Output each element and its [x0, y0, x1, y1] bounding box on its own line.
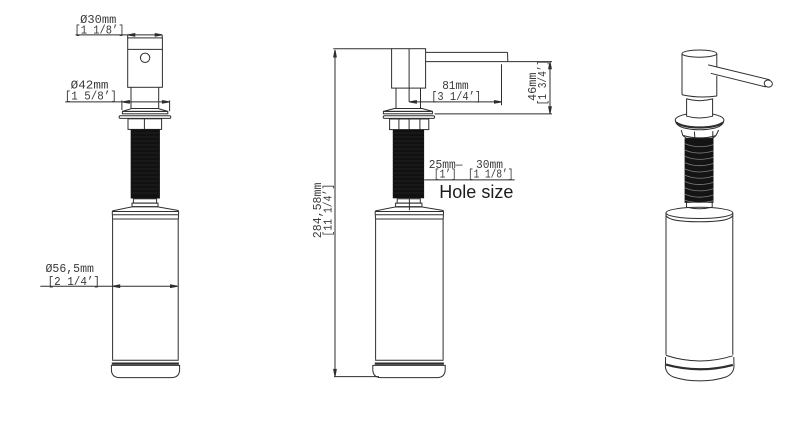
svg-text:[11 1/4’]: [11 1/4’]: [323, 184, 336, 237]
svg-text:[1 3/4’]: [1 3/4’]: [537, 60, 550, 105]
svg-text:Hole size: Hole size: [439, 182, 513, 202]
svg-text:[2 1/4’]: [2 1/4’]: [48, 276, 100, 289]
svg-text:Ø56,5mm: Ø56,5mm: [46, 263, 94, 276]
svg-text:[1 1/8’]: [1 1/8’]: [75, 25, 125, 38]
